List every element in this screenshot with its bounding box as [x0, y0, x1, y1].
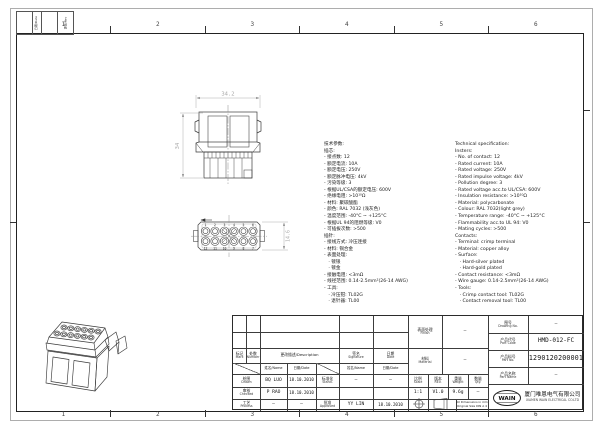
svg-text:9: 9 — [233, 246, 235, 250]
tb-material-value: — — [442, 348, 488, 374]
tb-scale-label: 比例Scale — [408, 374, 428, 387]
tb-partname-label: 产品名称Part Name — [488, 367, 528, 384]
tb-mark-header: 标记Mark — [233, 348, 246, 363]
svg-text:7: 7 — [252, 246, 254, 250]
tb-standard-date: — — [373, 374, 408, 387]
tb-process-date: — — [287, 399, 316, 411]
svg-text:12: 12 — [204, 246, 208, 250]
tb-date-subheader: 日期/Date — [287, 363, 316, 374]
tb-line — [233, 332, 408, 333]
tb-material-label: 材料Material — [408, 348, 442, 374]
tb-approved-date: 18.10.2010 — [373, 399, 408, 411]
drawing-sheet: 123456 123456 日期/Date 更改/Rev 技术参数:插芯:- 接… — [0, 0, 600, 424]
tb-finish-label: 表面处理Finish — [408, 316, 442, 348]
dim-width-label: 34.2 — [221, 92, 234, 98]
tb-drawingno-label: 图号Drawing No. — [488, 316, 528, 333]
tb-drawingno-value: — — [528, 316, 584, 333]
tb-rev-value: V1.0 — [428, 387, 448, 399]
tb-weight-value: 9.6g — [448, 387, 468, 399]
tb-partname-value: — — [528, 367, 584, 384]
tb-standard-label: 标准化Stand. — [316, 374, 339, 387]
tb-drawn-label: 绘图Drawn — [233, 374, 260, 387]
side-view-dimensions — [180, 95, 260, 178]
svg-text:8: 8 — [243, 246, 245, 250]
tb-process-name: — — [260, 399, 287, 411]
tb-rev-label: 版本REV. — [428, 374, 448, 387]
tb-standard-name: — — [339, 374, 373, 387]
tb-name-subheader: 姓名/Name — [260, 363, 287, 374]
tb-signature-header: 签名Signature — [339, 348, 373, 363]
company-name-en: XIAMEN WAIN ELECTRICAL CO.LTD — [526, 399, 579, 402]
svg-text:2: 2 — [214, 223, 216, 227]
tb-checked-name: P RAO — [260, 387, 287, 399]
tb-checked-label: 审核Checked — [233, 387, 260, 399]
tb-partno-value: 1290120200001 — [528, 350, 584, 367]
tb-number-header: 处数Number — [246, 348, 260, 363]
tb-weight-label: 重量Weight — [448, 374, 468, 387]
tb-date-subheader: 日期/Date — [373, 363, 408, 374]
isometric-view — [46, 322, 127, 391]
tb-date-header: 日期Date — [373, 348, 408, 363]
wain-logo: WAIN — [492, 389, 522, 407]
title-block: 标记Mark 处数Number 更改描述/Description 签名Signa… — [232, 315, 583, 410]
tb-qty-value: — — [468, 387, 488, 399]
svg-text:4: 4 — [233, 223, 235, 227]
tb-company: WAIN 厦门唯恩电气有限公司 XIAMEN WAIN ELECTRICAL C… — [488, 384, 584, 411]
tb-diagonal-cell — [316, 363, 339, 374]
tb-finish-value: — — [442, 316, 488, 348]
tb-partcode-label: 产品代号Part Code — [488, 333, 528, 350]
tb-dimension-note: All Dimensions in mm Original Size DIN A… — [456, 399, 488, 411]
tb-drawn-name: BQ LUO — [260, 374, 287, 387]
tb-drawn-date: 18.10.2010 — [287, 374, 316, 387]
front-view-dimension — [262, 222, 288, 250]
tb-name-subheader: 姓名/Name — [339, 363, 373, 374]
tb-description-header: 更改描述/Description — [260, 348, 339, 363]
svg-text:10: 10 — [223, 246, 227, 250]
tb-diagonal-cell — [233, 363, 260, 374]
svg-text:WAIN: WAIN — [498, 396, 515, 402]
svg-text:5: 5 — [243, 223, 245, 227]
svg-text:11: 11 — [213, 246, 217, 250]
tb-partcode-value: HMD-012-FC — [528, 333, 584, 350]
tb-approved-name: YY LIN — [339, 399, 373, 411]
front-view-centerlines — [191, 215, 267, 257]
svg-text:1: 1 — [205, 223, 207, 227]
svg-text:3: 3 — [224, 223, 226, 227]
tb-partno-label: 产品料号Part No. — [488, 350, 528, 367]
dim-side-label: 34 — [175, 142, 181, 149]
tb-qty-label: 数量Qty. — [468, 374, 488, 387]
tb-approved-label: 批准Approved — [316, 399, 339, 411]
tb-process-label: 工艺Process — [233, 399, 260, 411]
svg-text:6: 6 — [252, 223, 254, 227]
tb-scale-value: 1:1 — [408, 387, 428, 399]
tb-checked-date: 18.10.2010 — [287, 387, 316, 399]
dim-height-label: 14.6 — [286, 230, 292, 242]
